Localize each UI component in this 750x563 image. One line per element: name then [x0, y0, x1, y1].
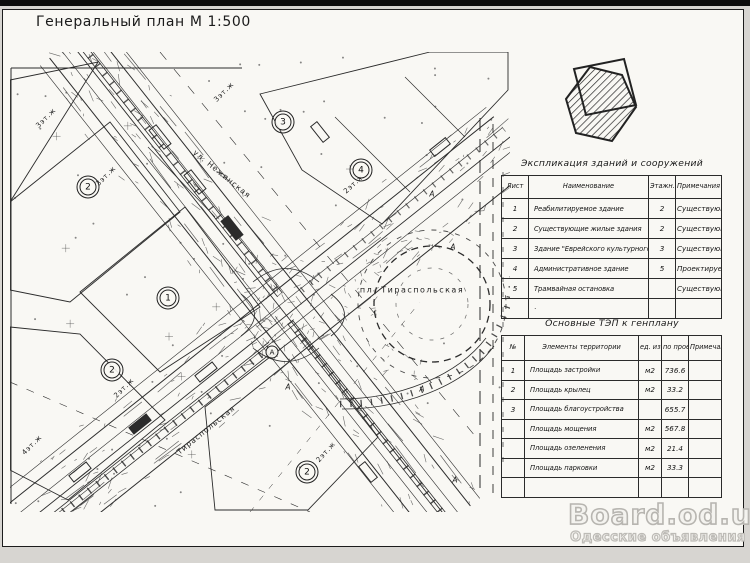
- column-header: Элементы территории: [525, 336, 639, 361]
- building-number-marker: 2: [104, 362, 121, 379]
- building-storey-label: 3эт.ж: [212, 80, 235, 103]
- table-cell: 33.2: [662, 380, 689, 400]
- table-row: 2Существующие жилые здания2Существующие: [502, 219, 722, 239]
- table-cell: [689, 439, 722, 459]
- table-cell: Площадь мощения: [525, 419, 639, 439]
- table-row: 3Площадь благоустройства655.7: [502, 400, 722, 420]
- table-cell: 736.6: [662, 361, 689, 381]
- site-plan-map: ул. НежинскаяТираспольскаяпл. Тираспольс…: [10, 52, 510, 512]
- table-row: 1Площадь застройким2736.6: [502, 361, 722, 381]
- building-number-marker: 1: [160, 290, 177, 307]
- table-row: Площадь озеленениям221.4: [502, 439, 722, 459]
- table-cell: 1: [502, 361, 525, 381]
- table-cell: 5: [649, 259, 676, 279]
- map-annotations: ул. НежинскаяТираспольскаяпл. Тираспольс…: [10, 52, 510, 512]
- building-number-marker: 2: [80, 179, 97, 196]
- table-cell: Площадь озеленения: [525, 439, 639, 459]
- building-number-marker: 2: [299, 464, 316, 481]
- table-cell: Здание "Еврейского культурного центра": [529, 239, 649, 259]
- table-cell: 5: [502, 279, 529, 299]
- table-row: Площадь мощениям2567.8: [502, 419, 722, 439]
- table-cell: [649, 299, 676, 319]
- table-cell: 3: [502, 400, 525, 420]
- table-cell: Площадь застройки: [525, 361, 639, 381]
- table-cell: [689, 478, 722, 498]
- page-title: Генеральный план М 1:500: [36, 14, 251, 30]
- building-number-marker: 3: [275, 114, 292, 131]
- table-cell: [689, 419, 722, 439]
- table-cell: м2: [639, 361, 662, 381]
- table-cell: [502, 299, 529, 319]
- table-cell: 3: [649, 239, 676, 259]
- table-row: ·: [502, 299, 722, 319]
- building-storey-label: 3эт.ж: [34, 106, 57, 129]
- table-cell: [689, 458, 722, 478]
- building-number-marker: 4: [353, 162, 370, 179]
- table-row: 3Здание "Еврейского культурного центра"3…: [502, 239, 722, 259]
- table-cell: 3: [502, 239, 529, 259]
- table-cell: м2: [639, 380, 662, 400]
- table-cell: 567.8: [662, 419, 689, 439]
- table-header-row: ЛистНаименованиеЭтажн.Примечания: [502, 176, 722, 199]
- site-location-keyplan-icon: [552, 55, 652, 147]
- explication-table: ЛистНаименованиеЭтажн.Примечания 1Реабил…: [501, 175, 722, 319]
- tep-title: Основные ТЭП к генплану: [501, 318, 723, 329]
- table-cell: 2: [649, 199, 676, 219]
- table-cell: Площадь крылец: [525, 380, 639, 400]
- table-cell: 2: [502, 380, 525, 400]
- table-cell: ·: [529, 299, 649, 319]
- zone-letter-label: А: [429, 190, 434, 199]
- street-name-label: Тираспольская: [175, 404, 237, 457]
- table-row: Площадь парковким233.3: [502, 458, 722, 478]
- table-cell: 21.4: [662, 439, 689, 459]
- table-cell: Трамвайная остановка: [529, 279, 649, 299]
- table-cell: [662, 478, 689, 498]
- column-header: Этажн.: [649, 176, 676, 199]
- column-header: Наименование: [529, 176, 649, 199]
- table-cell: 2: [649, 219, 676, 239]
- building-storey-label: 4эт.ж: [20, 433, 43, 456]
- table-cell: Административное здание: [529, 259, 649, 279]
- zone-letter-label: А: [285, 383, 290, 392]
- table-row: 1Реабилитируемое здание2Существующие: [502, 199, 722, 219]
- street-name-label: пл. Тираспольская: [360, 286, 464, 295]
- scanned-genplan-page: { "colors":{"ink":"#1f1f1f","paper":"#f9…: [0, 0, 750, 563]
- table-row: [502, 478, 722, 498]
- table-cell: м2: [639, 458, 662, 478]
- table-cell: 33.3: [662, 458, 689, 478]
- table-cell: [676, 299, 722, 319]
- table-cell: [689, 380, 722, 400]
- table-cell: Существующие: [676, 239, 722, 259]
- table-cell: 655.7: [662, 400, 689, 420]
- table-cell: м2: [639, 439, 662, 459]
- column-header: №: [502, 336, 525, 361]
- table-row: 4Административное здание5Проектируемое: [502, 259, 722, 279]
- table-cell: м2: [639, 419, 662, 439]
- building-storey-label: 2эт.ж: [315, 440, 338, 464]
- building-storey-label: 3эт.ж: [94, 164, 117, 187]
- table-cell: [502, 419, 525, 439]
- table-cell: Площадь парковки: [525, 458, 639, 478]
- table-row: 5Трамвайная остановкаСуществующая: [502, 279, 722, 299]
- table-cell: [689, 400, 722, 420]
- table-cell: Проектируемое: [676, 259, 722, 279]
- table-cell: [502, 458, 525, 478]
- table-cell: 1: [502, 199, 529, 219]
- table-cell: [639, 478, 662, 498]
- scan-edge-bar: [0, 0, 750, 6]
- table-cell: Площадь благоустройства: [525, 400, 639, 420]
- table-cell: [502, 439, 525, 459]
- table-header-row: №Элементы территорииед. измпо проектуПри…: [502, 336, 722, 361]
- column-header: по проекту: [662, 336, 689, 361]
- zone-letter-label: А: [450, 243, 455, 252]
- table-cell: Существующие: [676, 199, 722, 219]
- table-cell: Реабилитируемое здание: [529, 199, 649, 219]
- street-name-label: ул. Нежинская: [191, 148, 252, 200]
- table-cell: [649, 279, 676, 299]
- zone-letter-label: А: [452, 476, 457, 485]
- explication-title: Экспликация зданий и сооружений: [501, 158, 723, 169]
- table-cell: Существующие жилые здания: [529, 219, 649, 239]
- table-cell: [689, 361, 722, 381]
- explication-block: Экспликация зданий и сооружений ЛистНаим…: [501, 158, 723, 319]
- table-cell: Существующая: [676, 279, 722, 299]
- table-cell: [502, 478, 525, 498]
- building-storey-label: 2эт.ж: [112, 376, 135, 399]
- building-number-marker: А: [266, 346, 279, 359]
- table-cell: Существующие: [676, 219, 722, 239]
- column-header: Примечания: [689, 336, 722, 361]
- table-cell: [525, 478, 639, 498]
- tep-table: №Элементы территорииед. измпо проектуПри…: [501, 335, 722, 498]
- column-header: Примечания: [676, 176, 722, 199]
- table-cell: [639, 400, 662, 420]
- table-cell: 2: [502, 219, 529, 239]
- table-row: 2Площадь крылецм233.2: [502, 380, 722, 400]
- column-header: Лист: [502, 176, 529, 199]
- table-cell: 4: [502, 259, 529, 279]
- zone-letter-label: А: [419, 385, 424, 394]
- tep-block: Основные ТЭП к генплану №Элементы террит…: [501, 318, 723, 498]
- column-header: ед. изм: [639, 336, 662, 361]
